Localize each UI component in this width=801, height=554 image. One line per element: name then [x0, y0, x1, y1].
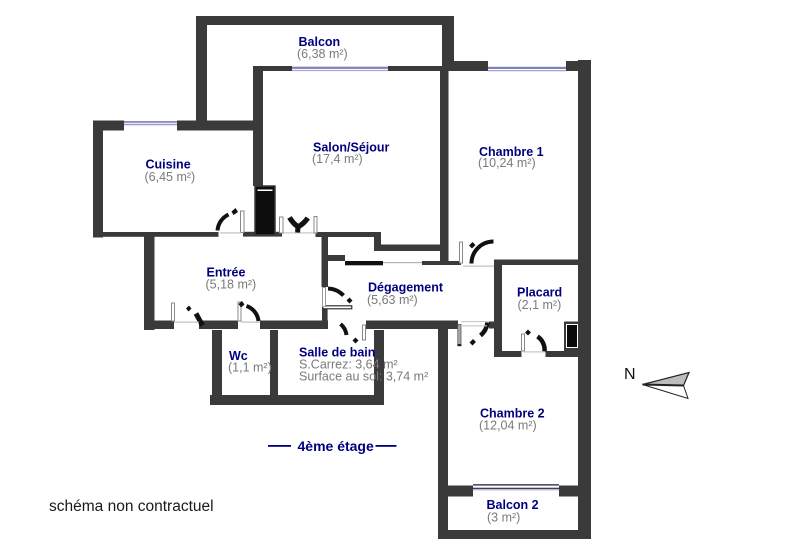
- svg-text:(17,4 m²): (17,4 m²): [312, 152, 363, 166]
- svg-text:(6,38 m²): (6,38 m²): [297, 47, 348, 61]
- svg-text:(2,1 m²): (2,1 m²): [518, 298, 562, 312]
- svg-text:(5,18 m²): (5,18 m²): [206, 278, 257, 292]
- svg-text:4ème étage: 4ème étage: [298, 438, 374, 454]
- svg-text:Surface au sol: 3,74 m²: Surface au sol: 3,74 m²: [299, 370, 428, 384]
- svg-text:(5,63 m²): (5,63 m²): [367, 293, 418, 307]
- svg-text:(6,45 m²): (6,45 m²): [145, 170, 196, 184]
- svg-text:schéma non contractuel: schéma non contractuel: [49, 498, 214, 515]
- svg-text:(1,1 m²): (1,1 m²): [228, 361, 272, 375]
- svg-text:N: N: [624, 366, 636, 383]
- svg-text:(12,04 m²): (12,04 m²): [479, 419, 537, 433]
- svg-text:(3 m²): (3 m²): [487, 511, 520, 525]
- svg-text:(10,24 m²): (10,24 m²): [478, 156, 536, 170]
